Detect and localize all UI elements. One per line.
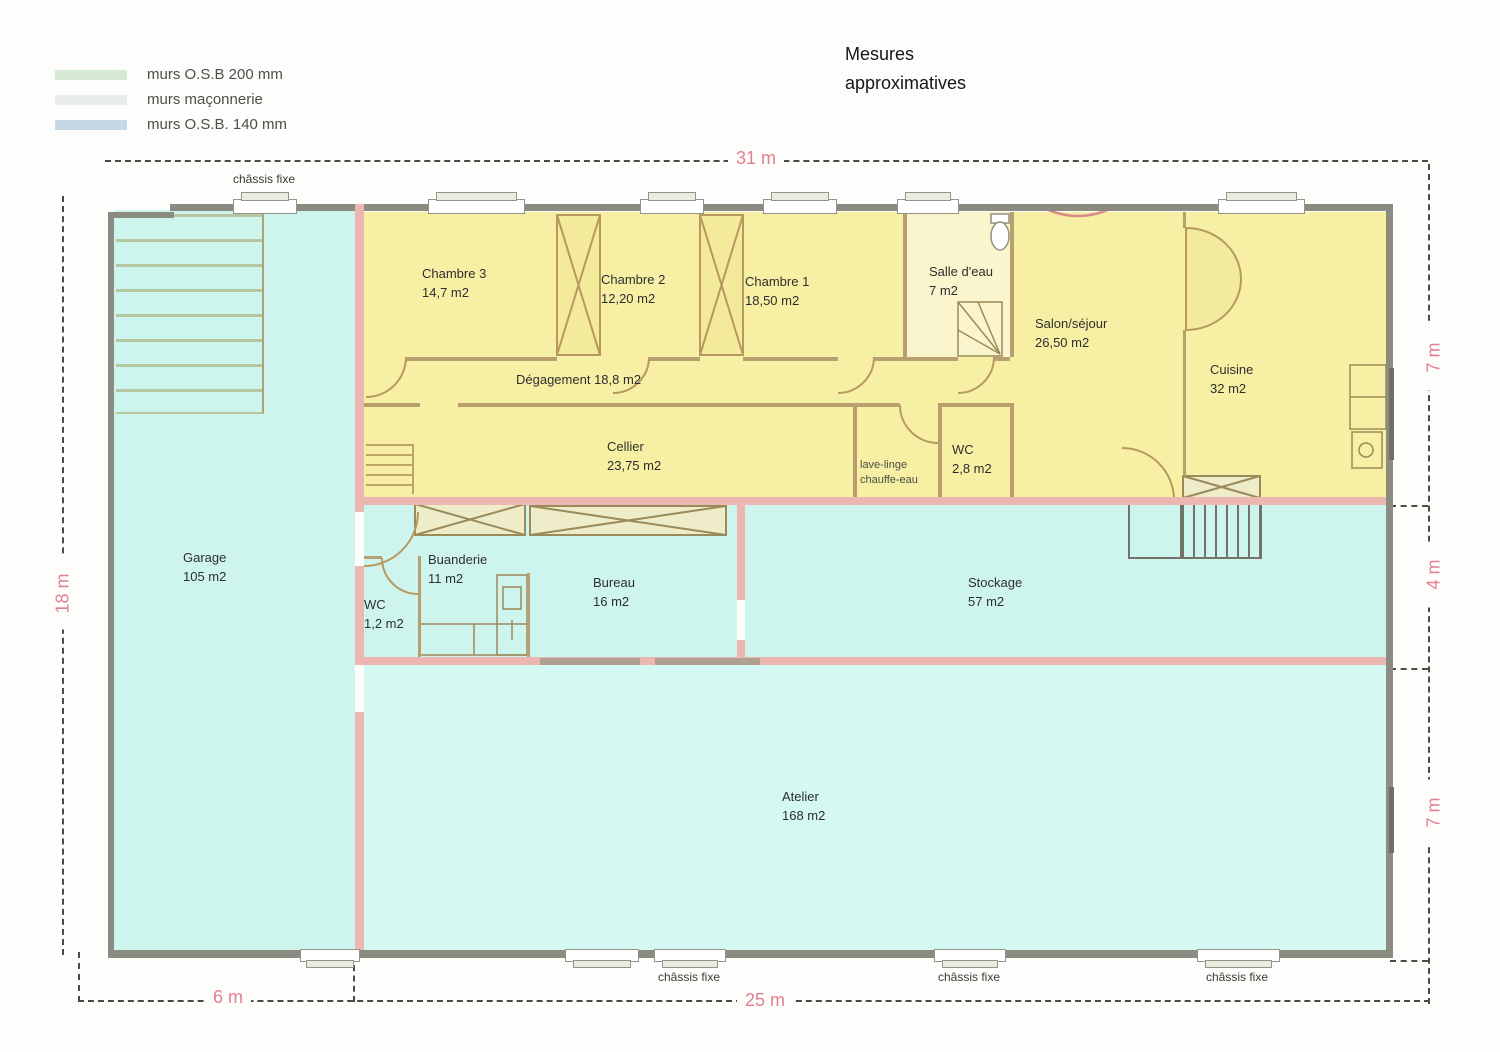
osb140-wall-swatch-icon [55,120,127,130]
garage-stairs-icon [116,214,264,414]
window-tab-icon [1226,192,1297,201]
dim-label-top: 31 m [728,148,784,169]
wall-buanderie [527,573,530,657]
wall-left [108,212,114,957]
wall-corridor [406,357,557,361]
wall-lave-linge [853,403,857,497]
room-label-wc-haut: WC2,8 m2 [952,440,992,478]
wall-cuisine [1183,212,1186,228]
window-tab-icon [662,960,718,968]
dim-label-bottom-left: 6 m [205,987,251,1008]
wall-garage-divider [355,566,364,660]
dim-tick [1390,668,1428,670]
room-label-lave-linge: lave-lingechauffe-eau [860,458,918,488]
wall-left-step [108,212,174,218]
room-label-bureau: Bureau16 m2 [593,573,635,611]
room-label-garage: Garage105 m2 [183,548,226,586]
wall-cellier [938,403,1012,407]
wall-wc [938,403,942,497]
wall-garage-divider [355,712,364,950]
room-label-stockage: Stockage57 m2 [968,573,1022,611]
room-label-chambre2: Chambre 212,20 m2 [601,270,665,308]
window-label: châssis fixe [924,970,1014,984]
window-tab-icon [1205,960,1272,968]
wall-corridor [743,357,838,361]
room-label-chambre3: Chambre 314,7 m2 [422,264,486,302]
wall-utility-workshop-divider [355,657,1386,665]
legend-label: murs O.S.B. 140 mm [147,116,287,133]
dim-label-right-bottom: 7 m [1422,780,1447,846]
wall-salon [1010,403,1014,497]
dim-tick [1390,960,1428,962]
window-icon [640,199,704,214]
dim-tick [78,952,80,1002]
legend-row-osb140: murs O.S.B. 140 mm [55,112,287,137]
dim-label-right-middle: 4 m [1422,542,1447,608]
wall-bureau-stockage-divider [737,497,745,600]
window-tab-icon [306,960,354,968]
window-label: châssis fixe [214,172,314,186]
window-tab-icon [648,192,696,201]
wall-wc-bas [418,556,421,657]
storage-area [745,505,1386,657]
workshop-area [364,665,1386,950]
wall-salon [1010,212,1014,357]
window-tab-icon [436,192,517,201]
window-icon [897,199,959,214]
room-label-chambre1: Chambre 118,50 m2 [745,272,809,310]
living-area [364,212,1386,497]
stockage-stairs-landing-icon [1128,503,1182,559]
legend-label: murs maçonnerie [147,91,263,108]
wall-cellier [458,403,853,407]
stockage-stairs-icon [1180,503,1262,559]
window-label: châssis fixe [644,970,734,984]
dim-label-right-top: 7 m [1422,325,1447,391]
title-line1: Mesures [845,40,966,69]
room-label-degagement: Dégagement 18,8 m2 [516,370,641,389]
wall-corridor [874,357,958,361]
wall-salle-eau [903,212,907,357]
dim-label-bottom-right: 25 m [737,990,793,1011]
title-line2: approximatives [845,69,966,98]
room-label-wc-bas: WC1,2 m2 [364,595,404,633]
window-tab-icon [241,192,289,201]
interior-window-icon [540,658,640,665]
room-label-cellier: Cellier23,75 m2 [607,437,661,475]
room-label-atelier: Atelier168 m2 [782,787,825,825]
window-tab-icon [771,192,829,201]
wall-garage-divider [355,204,364,512]
interior-window-icon [655,658,760,665]
dim-label-left: 18 m [51,558,76,630]
room-label-buanderie: Buanderie11 m2 [428,550,487,588]
page-title: Mesures approximatives [845,40,966,98]
room-label-cuisine: Cuisine32 m2 [1210,360,1253,398]
wall-cuisine [1183,330,1186,476]
wall-corridor [649,357,700,361]
legend-label: murs O.S.B 200 mm [147,66,283,83]
wall-corridor [994,357,1010,361]
window-label: châssis fixe [1192,970,1282,984]
masonry-wall-swatch-icon [55,95,127,105]
dim-tick [1390,505,1428,507]
window-icon [1389,787,1394,853]
room-label-salon: Salon/séjour26,50 m2 [1035,314,1107,352]
window-tab-icon [573,960,631,968]
wall-wc-bas [364,556,382,559]
window-icon [1218,199,1305,214]
wall-cellier [364,403,420,407]
window-icon [233,199,297,214]
wall-cellier [853,403,900,407]
legend: murs O.S.B 200 mm murs maçonnerie murs O… [55,62,287,137]
window-icon [1389,368,1394,460]
window-icon [763,199,837,214]
osb200-wall-swatch-icon [55,70,127,80]
wall-living-utility-divider [355,497,1386,505]
legend-row-masonry: murs maçonnerie [55,87,287,112]
cellier-stairs-icon [366,444,414,494]
window-icon [428,199,525,214]
legend-row-osb200: murs O.S.B 200 mm [55,62,287,87]
room-label-salle-eau: Salle d'eau7 m2 [929,262,993,300]
window-tab-icon [942,960,998,968]
floor-plan: Mesures approximatives murs O.S.B 200 mm… [0,0,1500,1052]
window-tab-icon [905,192,951,201]
